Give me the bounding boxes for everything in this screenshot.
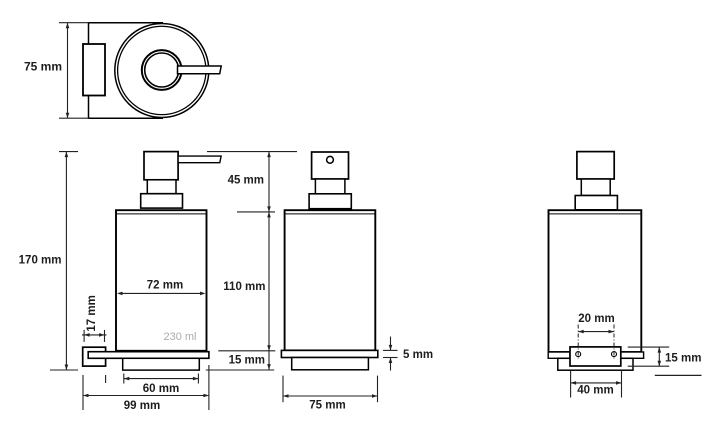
svg-text:15 mm: 15 mm [665,353,701,365]
svg-text:75 mm: 75 mm [309,399,345,411]
svg-text:5 mm: 5 mm [403,349,433,361]
svg-text:20 mm: 20 mm [578,313,614,325]
svg-text:72 mm: 72 mm [147,280,183,292]
svg-text:99 mm: 99 mm [124,400,160,412]
svg-text:230 ml: 230 ml [163,331,196,343]
svg-text:60 mm: 60 mm [143,383,179,395]
svg-text:17 mm: 17 mm [86,295,98,331]
svg-text:170 mm: 170 mm [19,255,62,267]
svg-text:75 mm: 75 mm [24,60,62,74]
svg-text:40 mm: 40 mm [577,384,613,396]
svg-text:15 mm: 15 mm [229,354,265,366]
svg-text:110 mm: 110 mm [223,281,265,293]
svg-text:45 mm: 45 mm [228,174,264,186]
